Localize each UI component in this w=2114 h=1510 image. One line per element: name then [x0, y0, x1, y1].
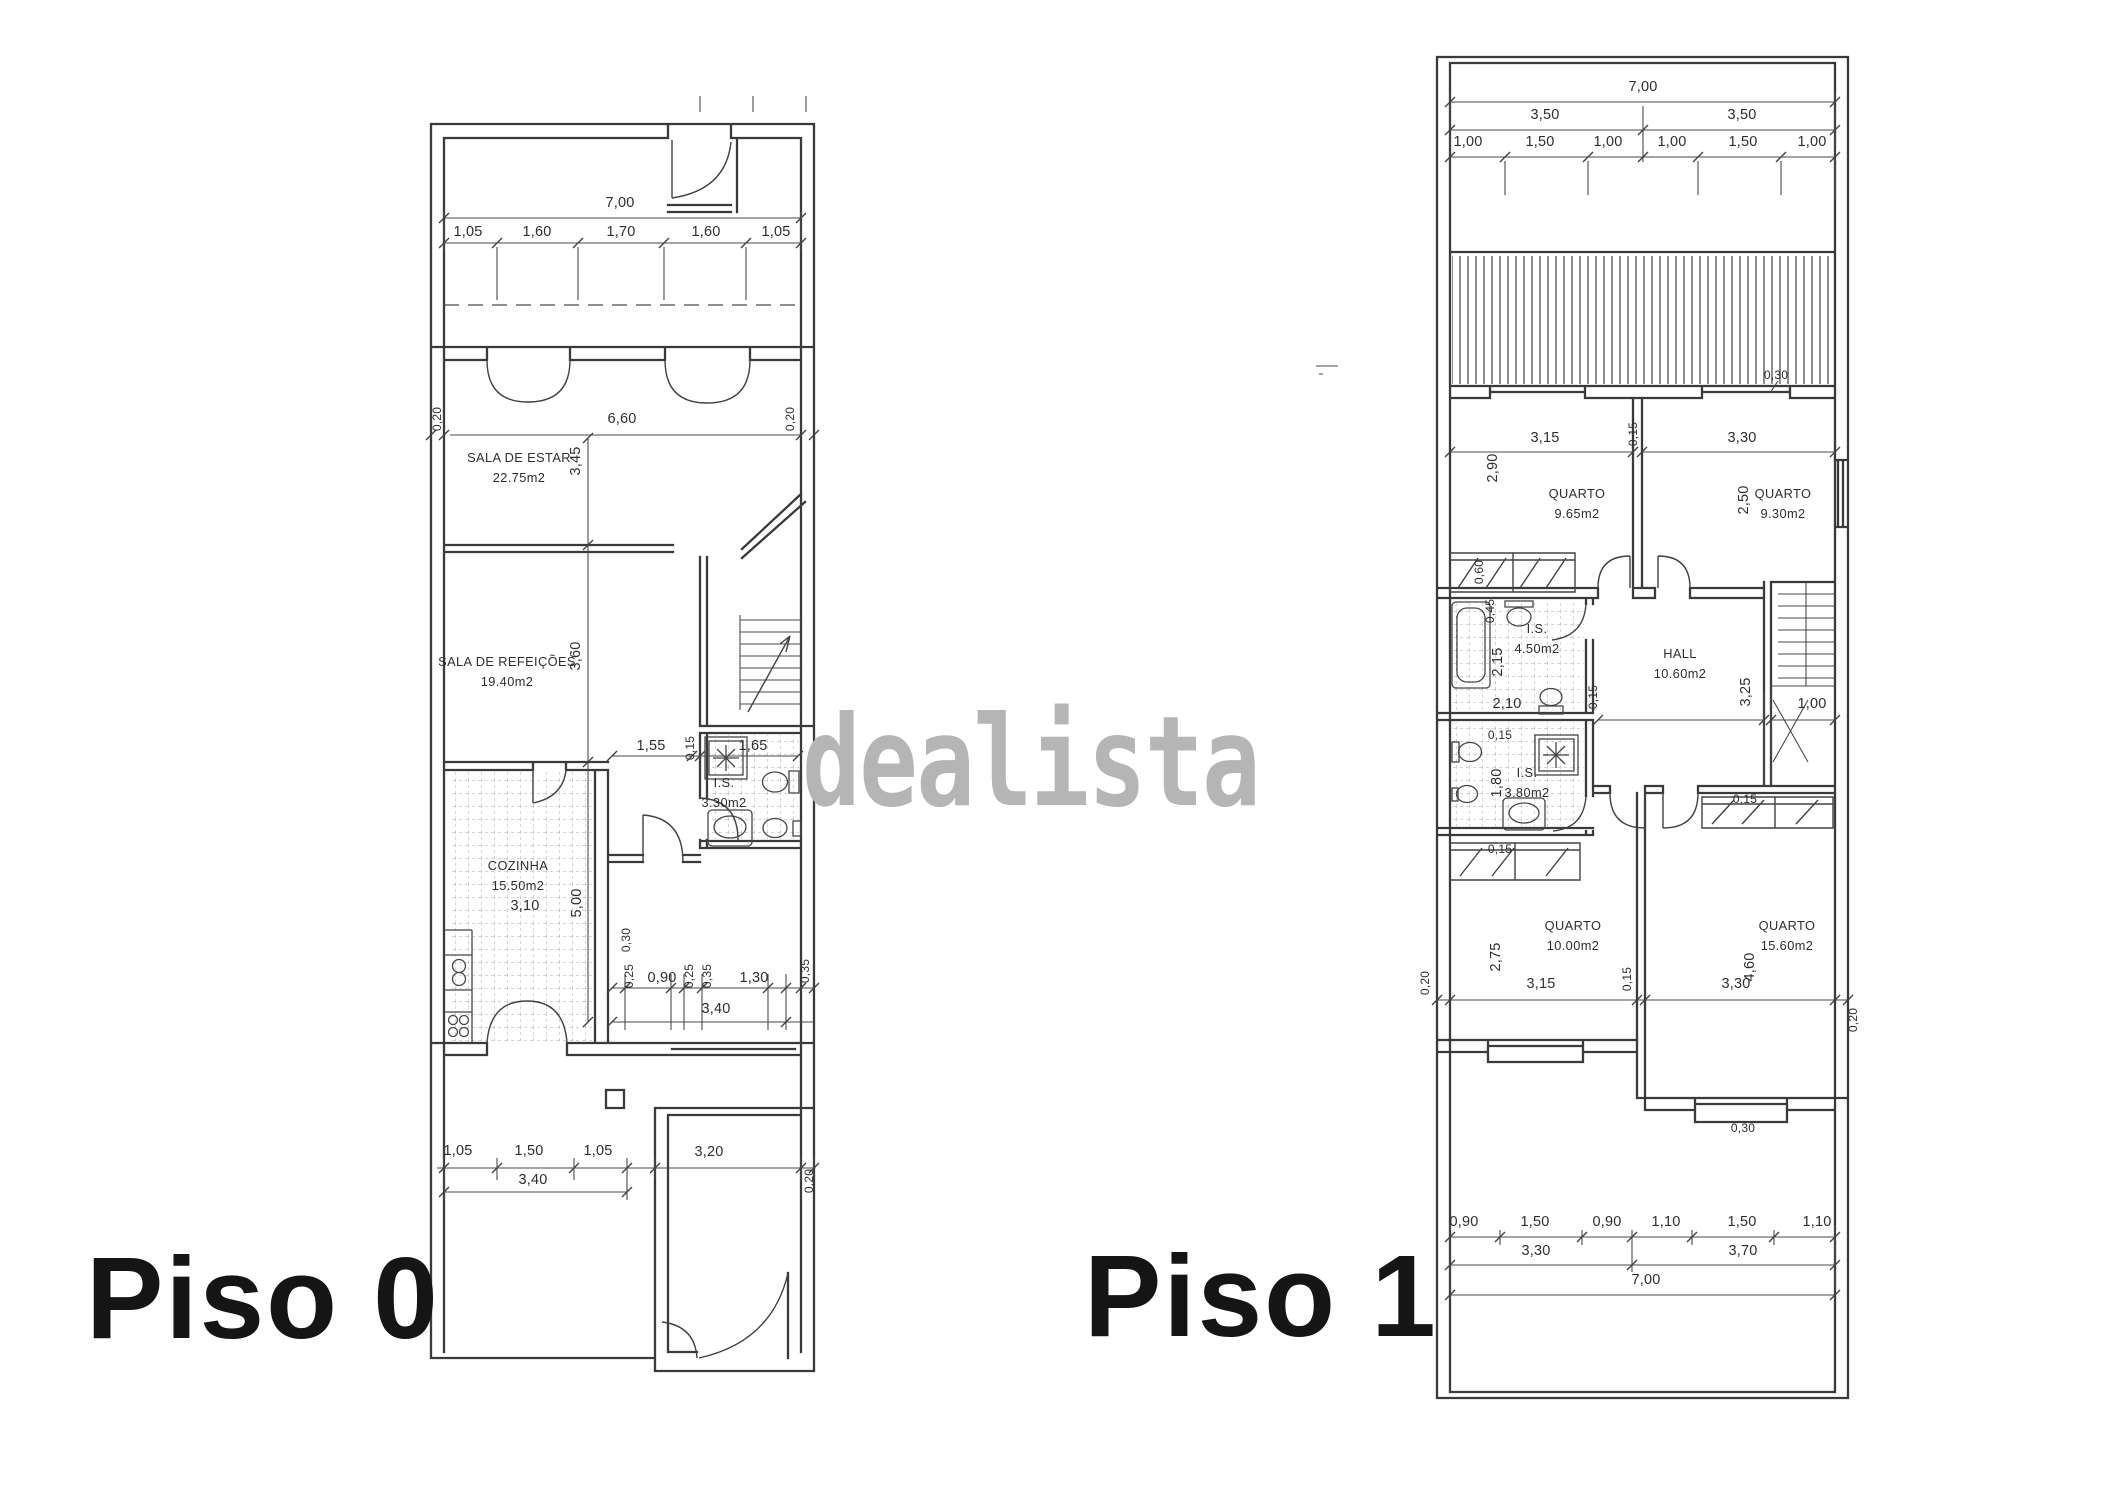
room-label: 15.60m2 — [1761, 938, 1814, 953]
dim-label: 0,20 — [802, 1169, 816, 1193]
dim-label: 0,15 — [1733, 792, 1757, 806]
dim-label: 1,30 — [739, 970, 768, 986]
room-label: QUARTO — [1759, 918, 1816, 933]
dim-label: 0,90 — [1449, 1214, 1478, 1230]
room-label: 15.50m2 — [492, 878, 545, 893]
dim-label: 0,30 — [1731, 1121, 1755, 1135]
dim-label: 1,00 — [1797, 696, 1826, 712]
dim-label: 0,15 — [1488, 728, 1512, 742]
dim-label: 1,50 — [1727, 1214, 1756, 1230]
dim-label: 1,05 — [761, 224, 790, 240]
dim-label: 0,25 — [682, 964, 696, 988]
dim-label: 1,05 — [583, 1143, 612, 1159]
dim-label: 0,20 — [1418, 971, 1432, 995]
dim-label: 0,30 — [1764, 368, 1788, 382]
room-label: 4.50m2 — [1514, 641, 1559, 656]
idealista-watermark: dealista — [802, 700, 1259, 825]
room-label: HALL — [1663, 646, 1697, 661]
room-label: 10.00m2 — [1547, 938, 1600, 953]
dim-label: 1,60 — [691, 224, 720, 240]
dim-label: 0,35 — [700, 964, 714, 988]
dim-label: 2,90 — [1485, 453, 1501, 482]
room-label: SALA DE REFEIÇÕES — [438, 654, 576, 669]
dim-label: 3,25 — [1738, 677, 1754, 706]
room-label: 10.60m2 — [1654, 666, 1707, 681]
dim-label: 3,40 — [701, 1001, 730, 1017]
dim-label: 0,15 — [1626, 422, 1640, 446]
dim-label: 0,45 — [1483, 599, 1497, 623]
dim-label: 7,00 — [1628, 79, 1657, 95]
floor-label-piso-0: Piso 0 — [86, 1240, 440, 1356]
dim-label: 0,60 — [1472, 560, 1486, 584]
dim-label: 1,00 — [1593, 134, 1622, 150]
dim-label: 0,15 — [1620, 967, 1634, 991]
dim-label: 2,15 — [1490, 647, 1506, 676]
dim-label: 3,20 — [694, 1144, 723, 1160]
room-label: SALA DE ESTAR — [467, 450, 571, 465]
dim-label: 2,75 — [1488, 942, 1504, 971]
dim-label: 3,30 — [1727, 430, 1756, 446]
room-label: I.S. — [1527, 621, 1548, 636]
dim-label: 3,50 — [1530, 107, 1559, 123]
dim-label: 1,60 — [522, 224, 551, 240]
dim-label: 1,10 — [1651, 1214, 1680, 1230]
dim-label: 3,50 — [1727, 107, 1756, 123]
dim-label: 0,90 — [647, 970, 676, 986]
room-label: 9.65m2 — [1554, 506, 1599, 521]
piso1-plan: 7,003,503,501,001,501,001,001,501,000,30… — [1316, 57, 1860, 1398]
dim-label: 3,30 — [1521, 1243, 1550, 1259]
dim-label: 2,50 — [1736, 485, 1752, 514]
room-label: COZINHA — [488, 858, 548, 873]
dim-label: 7,00 — [605, 195, 634, 211]
dim-label: 0,15 — [1586, 685, 1600, 709]
dim-label: 3,15 — [1526, 976, 1555, 992]
piso0-plan: 7,001,051,601,701,601,050,206,600,203,45… — [426, 96, 819, 1371]
dim-label: 1,05 — [453, 224, 482, 240]
dim-label: 0,90 — [1592, 1214, 1621, 1230]
dim-label: 1,10 — [1802, 1214, 1831, 1230]
dim-label: 0,25 — [622, 964, 636, 988]
terrace-deck-hatching — [1452, 256, 1833, 384]
floorplan-page: { "watermark": {"text": "dealista", "col… — [0, 0, 2114, 1510]
piso0-stairs — [740, 615, 801, 710]
dim-label: 1,50 — [1525, 134, 1554, 150]
dim-label: 5,00 — [569, 888, 585, 917]
dim-label: 1,50 — [1728, 134, 1757, 150]
dim-label: 2,10 — [1492, 696, 1521, 712]
dim-label: 3,15 — [1530, 430, 1559, 446]
dim-label: 0,15 — [683, 736, 697, 760]
dim-label: 0,35 — [798, 959, 812, 983]
room-label: 3.30m2 — [701, 795, 746, 810]
room-label: I.S. — [714, 775, 735, 790]
dim-label: 3,10 — [510, 898, 539, 914]
piso1-stairs — [1764, 582, 1835, 786]
dim-label: 6,60 — [607, 411, 636, 427]
dim-label: 1,55 — [636, 738, 665, 754]
room-label: QUARTO — [1545, 918, 1602, 933]
dim-label: 1,65 — [738, 738, 767, 754]
room-label: 9.30m2 — [1760, 506, 1805, 521]
dim-label: 7,00 — [1631, 1272, 1660, 1288]
room-label: 3.80m2 — [1504, 785, 1549, 800]
dim-label: 0,20 — [1846, 1008, 1860, 1032]
room-label: QUARTO — [1755, 486, 1812, 501]
dim-label: 0,20 — [430, 407, 444, 431]
dim-label: 1,50 — [514, 1143, 543, 1159]
dim-label: 1,80 — [1489, 768, 1505, 797]
room-label: I.S. — [1517, 765, 1538, 780]
floor-label-piso-1: Piso 1 — [1084, 1238, 1438, 1354]
dim-label: 3,70 — [1728, 1243, 1757, 1259]
dim-label: 0,30 — [619, 928, 633, 952]
room-label: 19.40m2 — [481, 674, 534, 689]
room-label: 22.75m2 — [493, 470, 546, 485]
dim-label: 1,00 — [1657, 134, 1686, 150]
dim-label: 0,20 — [783, 407, 797, 431]
dim-label: 1,50 — [1520, 1214, 1549, 1230]
dim-label: 1,00 — [1797, 134, 1826, 150]
dim-label: 1,05 — [443, 1143, 472, 1159]
dim-label: 3,40 — [518, 1172, 547, 1188]
room-label: QUARTO — [1549, 486, 1606, 501]
dim-label: 1,00 — [1453, 134, 1482, 150]
dim-label: 4,60 — [1742, 952, 1758, 981]
dim-label: 0,15 — [1488, 842, 1512, 856]
dim-label: 1,70 — [606, 224, 635, 240]
